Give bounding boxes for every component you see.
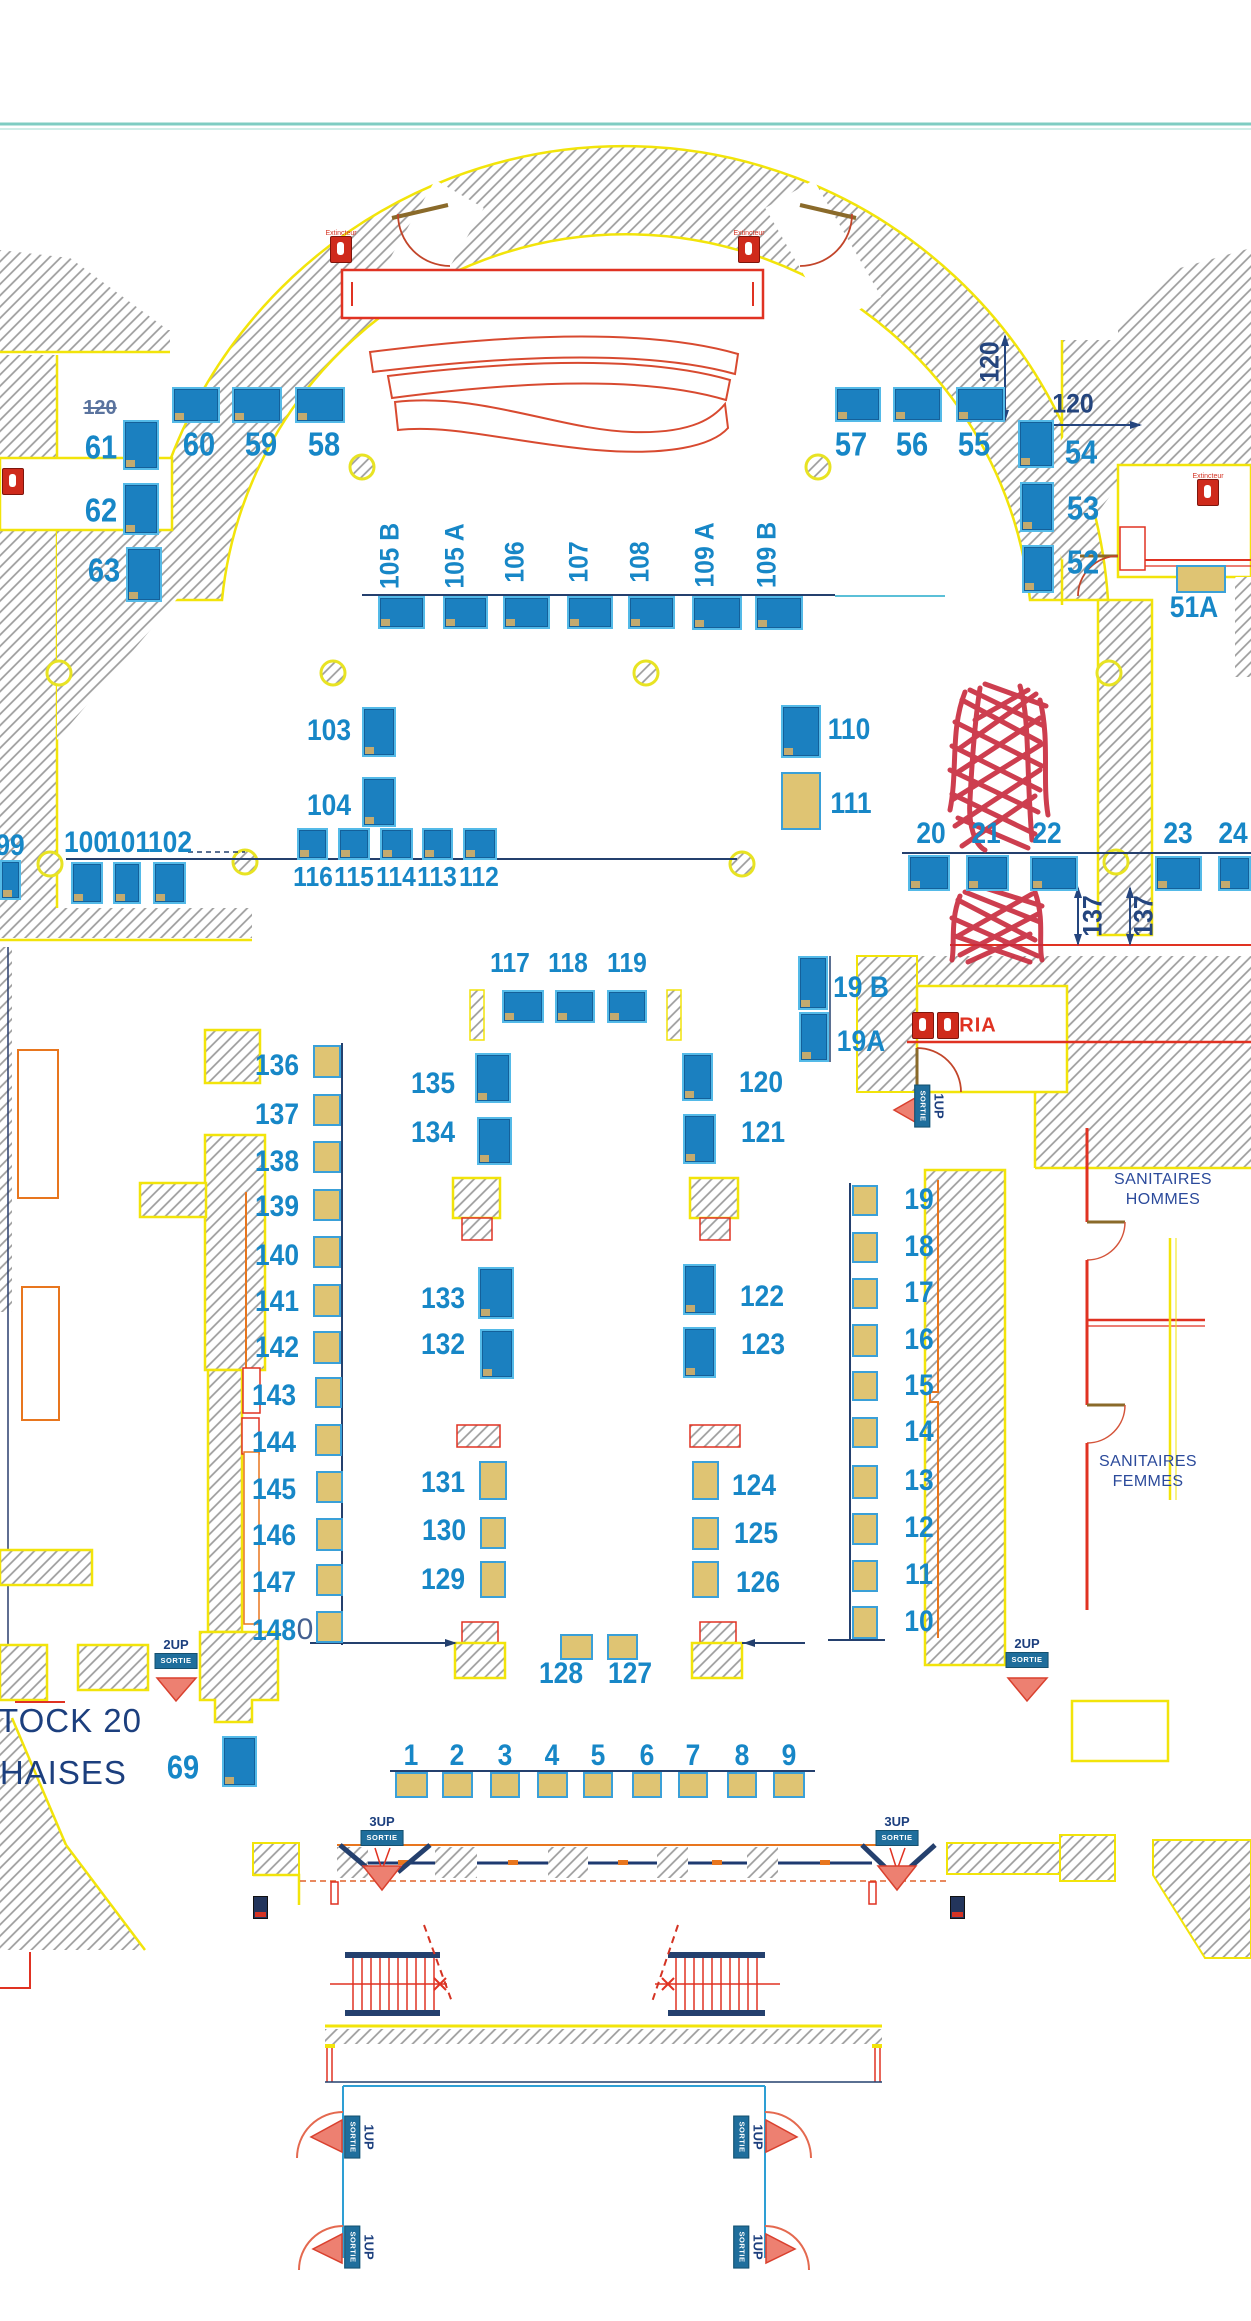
booth-box-62 xyxy=(123,483,159,535)
booth-label-9: 9 xyxy=(782,1741,797,1771)
booth-box-143 xyxy=(315,1377,342,1408)
booth-box-105A xyxy=(443,596,488,629)
booth-box-135 xyxy=(475,1053,511,1103)
booth-box-4 xyxy=(537,1772,568,1798)
booth-label-126: 126 xyxy=(736,1568,780,1598)
booth-box-124 xyxy=(692,1461,719,1500)
booth-label-118: 118 xyxy=(548,949,588,977)
booth-label-129: 129 xyxy=(421,1565,465,1595)
dimension-text-0: 120 xyxy=(977,341,1004,382)
booth-box-102 xyxy=(153,862,186,904)
booth-label-56: 56 xyxy=(896,428,928,461)
top-boundary-lines xyxy=(0,124,1251,129)
exit-level-label: 1UP xyxy=(362,2124,375,2149)
booth-label-125: 125 xyxy=(734,1519,778,1549)
booth-box-19B xyxy=(798,956,828,1010)
dimension-text-3: 137 xyxy=(1131,895,1158,936)
booth-label-145: 145 xyxy=(252,1475,296,1505)
booth-label-136: 136 xyxy=(255,1051,299,1081)
booth-label-128: 128 xyxy=(539,1659,583,1689)
booth-box-7 xyxy=(678,1772,708,1798)
booth-box-60 xyxy=(172,387,220,423)
fire-call-point-icon xyxy=(253,1896,268,1919)
booth-label-133: 133 xyxy=(421,1284,465,1314)
exit-level-label: 3UP xyxy=(369,1815,394,1828)
booth-label-19: 19 xyxy=(904,1185,933,1215)
booth-label-99: 99 xyxy=(0,831,25,861)
booth-box-125 xyxy=(692,1517,719,1550)
booth-box-8 xyxy=(727,1772,757,1798)
booth-label-127: 127 xyxy=(608,1659,652,1689)
extincteur-icon: Extincteur xyxy=(1197,479,1219,506)
booth-box-17 xyxy=(852,1278,878,1309)
booth-label-51A: 51A xyxy=(1170,593,1218,623)
booth-label-10: 10 xyxy=(904,1607,933,1637)
booth-label-52: 52 xyxy=(1067,546,1099,579)
exit-level-label: 1UP xyxy=(751,2124,764,2149)
booth-label-17: 17 xyxy=(904,1278,933,1308)
booth-label-63: 63 xyxy=(88,554,120,587)
booth-box-23 xyxy=(1155,856,1202,891)
booth-box-136 xyxy=(313,1045,341,1078)
booth-label-140: 140 xyxy=(255,1241,299,1271)
booth-label-134: 134 xyxy=(411,1118,455,1148)
sortie-sign: SORTIE xyxy=(915,1085,931,1128)
booth-box-109B xyxy=(755,596,803,630)
extincteur-icon xyxy=(2,468,24,495)
booth-box-145 xyxy=(316,1471,343,1503)
booth-box-22 xyxy=(1030,856,1078,891)
booth-box-56 xyxy=(893,387,942,422)
booth-label-13: 13 xyxy=(904,1466,933,1496)
booth-label-55: 55 xyxy=(958,428,990,461)
booth-box-112 xyxy=(463,828,497,860)
exit-level-label: 1UP xyxy=(751,2234,764,2259)
exit-badge-1: 2UPSORTIE xyxy=(1006,1637,1049,1668)
booth-box-6 xyxy=(632,1772,662,1798)
booth-box-133 xyxy=(478,1267,514,1319)
booth-label-6: 6 xyxy=(640,1741,655,1771)
ria-area-walls xyxy=(857,945,1251,1168)
booth-box-9 xyxy=(773,1772,805,1798)
booth-box-100 xyxy=(71,862,103,904)
booth-label-142: 142 xyxy=(255,1333,299,1363)
fire-call-point-icon xyxy=(950,1896,965,1919)
booth-box-11 xyxy=(852,1560,878,1592)
extincteur-box-icon xyxy=(330,236,352,263)
booth-box-19 xyxy=(852,1185,878,1216)
stairs xyxy=(330,1925,780,2016)
booth-label-58: 58 xyxy=(308,428,340,461)
dimension-text-2: 137 xyxy=(1080,895,1107,936)
extincteur-box-icon xyxy=(912,1012,934,1039)
sanitaires-femmes-label: SANITAIRES FEMMES xyxy=(1099,1452,1197,1492)
booth-box-5 xyxy=(583,1772,613,1798)
exit-badge-2: 3UPSORTIE xyxy=(361,1815,404,1846)
booth-box-119 xyxy=(607,990,647,1023)
booth-box-101 xyxy=(113,862,141,904)
exit-level-label: 1UP xyxy=(362,2234,375,2259)
booth-label-7: 7 xyxy=(686,1741,701,1771)
booth-box-123 xyxy=(683,1327,716,1378)
booth-box-115 xyxy=(338,828,370,860)
extincteur-box-icon xyxy=(2,468,24,495)
booth-label-100: 100 xyxy=(64,828,108,858)
booth-box-148 xyxy=(316,1611,343,1643)
dimension-text-1: 120 xyxy=(1052,391,1093,418)
ria-label: RIA xyxy=(959,1014,996,1039)
booth-label-111: 111 xyxy=(830,789,871,819)
booth-box-20 xyxy=(908,855,950,891)
booth-box-1 xyxy=(395,1772,428,1798)
booth-box-63 xyxy=(126,547,162,602)
booth-label-19B: 19 B xyxy=(833,973,889,1003)
booth-label-146: 146 xyxy=(252,1521,296,1551)
booth-box-107 xyxy=(567,596,613,629)
booth-box-13 xyxy=(852,1465,878,1499)
stock-label-line1: STOCK 20 xyxy=(0,1700,142,1741)
booth-label-11: 11 xyxy=(905,1560,933,1590)
extincteur-icon: Extincteur xyxy=(330,236,352,263)
booth-label-132: 132 xyxy=(421,1330,465,1360)
booth-box-120 xyxy=(682,1053,713,1101)
sortie-sign: SORTIE xyxy=(361,1830,404,1846)
booth-box-14 xyxy=(852,1417,878,1448)
booth-box-59 xyxy=(232,387,282,423)
extincteur-icon xyxy=(937,1012,959,1039)
extincteur-icon xyxy=(912,1012,934,1039)
booth-label-3: 3 xyxy=(498,1741,513,1771)
booth-label-147: 147 xyxy=(252,1568,296,1598)
booth-label-123: 123 xyxy=(741,1330,785,1360)
booth-label-120: 120 xyxy=(739,1068,783,1098)
extincteur-label: Extincteur xyxy=(325,230,356,237)
booth-label-24: 24 xyxy=(1218,819,1247,849)
exit-badge-8: 1UPSORTIE xyxy=(734,2226,765,2269)
booth-box-58 xyxy=(295,387,345,423)
booth-label-143: 143 xyxy=(252,1381,296,1411)
exit-badge-4: 1UPSORTIE xyxy=(915,1085,946,1128)
booth-label-108: 108 xyxy=(627,541,654,582)
booth-label-139: 139 xyxy=(255,1192,299,1222)
booth-label-4: 4 xyxy=(545,1741,560,1771)
sanitaires-hommes-line1: SANITAIRES xyxy=(1114,1171,1212,1188)
left-walls xyxy=(0,330,278,1722)
sortie-sign: SORTIE xyxy=(876,1830,919,1846)
booth-box-18 xyxy=(852,1232,878,1263)
exit-level-label: 1UP xyxy=(932,1093,945,1118)
booth-label-109B: 109 B xyxy=(754,522,781,588)
booth-label-114: 114 xyxy=(376,863,416,891)
floor-plan: STOCK 20 CHAISES SANITAIRES HOMMES SANIT… xyxy=(0,0,1251,2321)
booth-box-114 xyxy=(380,828,413,860)
booth-label-122: 122 xyxy=(740,1282,784,1312)
sortie-sign: SORTIE xyxy=(734,2226,750,2269)
extincteur-label: Extincteur xyxy=(1192,473,1223,480)
booth-label-137b: 137 xyxy=(255,1100,299,1130)
exit-level-label: 2UP xyxy=(1014,1637,1039,1650)
booth-label-20: 20 xyxy=(916,819,945,849)
exit-badge-5: 1UPSORTIE xyxy=(345,2116,376,2159)
booth-label-14: 14 xyxy=(904,1417,933,1447)
booth-box-52 xyxy=(1022,545,1054,593)
booth-label-15: 15 xyxy=(904,1371,933,1401)
booth-label-121: 121 xyxy=(741,1118,785,1148)
booth-box-108 xyxy=(628,596,675,629)
booth-label-105B: 105 B xyxy=(377,523,404,589)
booth-box-142 xyxy=(313,1331,341,1364)
bottom-platform xyxy=(325,2026,882,2258)
booth-label-21: 21 xyxy=(971,819,1000,849)
sortie-sign: SORTIE xyxy=(1006,1652,1049,1668)
booth-box-113 xyxy=(422,828,453,860)
booth-label-60: 60 xyxy=(183,428,215,461)
booth-label-106: 106 xyxy=(502,541,529,582)
booth-box-117 xyxy=(502,990,544,1023)
booth-box-54 xyxy=(1018,420,1054,468)
booth-box-15 xyxy=(852,1371,878,1401)
booth-label-119: 119 xyxy=(607,949,647,977)
booth-label-16: 16 xyxy=(904,1325,933,1355)
booth-box-57 xyxy=(835,387,881,422)
exit-level-label: 2UP xyxy=(163,1638,188,1651)
booth-box-141 xyxy=(313,1284,341,1317)
booth-label-135: 135 xyxy=(411,1069,455,1099)
booth-label-141: 141 xyxy=(255,1287,299,1317)
booth-box-137b xyxy=(313,1094,341,1126)
booth-box-104 xyxy=(362,777,396,827)
booth-box-147 xyxy=(316,1564,343,1596)
sortie-sign: SORTIE xyxy=(345,2226,361,2269)
booth-label-23: 23 xyxy=(1163,819,1192,849)
exit-badge-3: 3UPSORTIE xyxy=(876,1815,919,1846)
annotation-0: 120 xyxy=(83,398,116,418)
extincteur-label: Extincteur xyxy=(733,230,764,237)
annotation-1: 0 xyxy=(297,1615,314,1645)
booth-label-2: 2 xyxy=(450,1741,465,1771)
booth-box-134 xyxy=(477,1117,512,1165)
booth-box-140 xyxy=(313,1236,341,1268)
booth-label-110: 110 xyxy=(828,715,871,745)
extincteur-box-icon xyxy=(738,236,760,263)
booth-box-132 xyxy=(480,1329,514,1379)
booth-box-99 xyxy=(0,860,21,900)
booth-label-53: 53 xyxy=(1067,492,1099,525)
booth-label-1: 1 xyxy=(404,1741,419,1771)
booth-box-106 xyxy=(503,596,550,629)
booth-box-126 xyxy=(692,1561,719,1598)
booth-box-118 xyxy=(555,990,595,1023)
booth-label-130: 130 xyxy=(422,1516,466,1546)
booth-box-10 xyxy=(852,1606,878,1639)
booth-label-5: 5 xyxy=(591,1741,606,1771)
booth-box-121 xyxy=(683,1114,716,1164)
booth-label-107: 107 xyxy=(566,541,593,582)
booth-box-139 xyxy=(313,1189,341,1221)
booth-box-129 xyxy=(480,1561,506,1598)
sortie-sign: SORTIE xyxy=(155,1653,198,1669)
booth-box-69 xyxy=(222,1736,257,1787)
booth-label-112: 112 xyxy=(459,863,499,891)
booth-box-24 xyxy=(1218,856,1251,891)
booth-box-3 xyxy=(490,1772,520,1798)
booth-label-12: 12 xyxy=(904,1513,933,1543)
booth-box-109A xyxy=(692,596,742,630)
walls-layer xyxy=(0,0,1251,2321)
booth-box-105B xyxy=(378,596,425,629)
sanitaires-hommes-label: SANITAIRES HOMMES xyxy=(1114,1170,1212,1210)
sanitaires-hommes-line2: HOMMES xyxy=(1126,1191,1200,1208)
booth-label-115: 115 xyxy=(334,863,374,891)
booth-box-131 xyxy=(479,1461,507,1500)
booth-box-130 xyxy=(480,1517,506,1549)
booth-label-102: 102 xyxy=(148,828,192,858)
sortie-sign: SORTIE xyxy=(734,2116,750,2159)
booth-label-148: 148 xyxy=(252,1616,296,1646)
booth-box-61 xyxy=(123,420,159,470)
stage xyxy=(342,270,763,452)
booth-label-62: 62 xyxy=(85,494,117,527)
booth-label-57: 57 xyxy=(835,428,867,461)
extincteur-box-icon xyxy=(937,1012,959,1039)
booth-label-105A: 105 A xyxy=(442,523,469,588)
booth-box-110 xyxy=(781,705,821,758)
booth-box-111 xyxy=(781,772,821,830)
booth-label-19A: 19A xyxy=(837,1027,885,1057)
exit-level-label: 3UP xyxy=(884,1815,909,1828)
stock-label-line2: CHAISES xyxy=(0,1752,127,1793)
bottom-right-walls xyxy=(1060,1835,1251,1958)
booth-box-12 xyxy=(852,1513,878,1545)
exit-badge-6: 1UPSORTIE xyxy=(734,2116,765,2159)
sanitaires-femmes-line2: FEMMES xyxy=(1113,1473,1184,1490)
booth-box-55 xyxy=(956,387,1005,422)
extincteur-icon: Extincteur xyxy=(738,236,760,263)
sanitaires-femmes-line1: SANITAIRES xyxy=(1099,1453,1197,1470)
booth-label-131: 131 xyxy=(421,1468,465,1498)
booth-box-19A xyxy=(799,1012,829,1062)
booth-label-116: 116 xyxy=(293,863,333,891)
booth-label-69: 69 xyxy=(167,1751,199,1784)
booth-label-109A: 109 A xyxy=(692,522,719,587)
exit-badge-7: 1UPSORTIE xyxy=(345,2226,376,2269)
booth-box-138 xyxy=(313,1141,341,1173)
exit-badge-0: 2UPSORTIE xyxy=(155,1638,198,1669)
booth-box-116 xyxy=(297,828,328,860)
booth-label-124: 124 xyxy=(732,1471,776,1501)
booth-box-2 xyxy=(442,1772,473,1798)
booth-label-8: 8 xyxy=(735,1741,750,1771)
booth-box-16 xyxy=(852,1324,878,1357)
booth-box-51A xyxy=(1176,565,1226,593)
extincteur-box-icon xyxy=(1197,479,1219,506)
booth-label-103: 103 xyxy=(307,716,351,746)
booth-label-144: 144 xyxy=(252,1428,296,1458)
booth-label-101: 101 xyxy=(106,828,150,858)
booth-box-103 xyxy=(362,707,396,757)
sortie-sign: SORTIE xyxy=(345,2116,361,2159)
sanitaires-walls xyxy=(925,1128,1205,1761)
booth-box-122 xyxy=(683,1264,716,1315)
booth-box-21 xyxy=(966,855,1009,891)
booth-label-113: 113 xyxy=(417,863,457,891)
booth-label-59: 59 xyxy=(245,428,277,461)
booth-label-54: 54 xyxy=(1065,436,1097,469)
booth-label-61: 61 xyxy=(85,431,117,464)
booth-label-117: 117 xyxy=(490,949,530,977)
booth-box-144 xyxy=(315,1424,342,1456)
booth-label-138: 138 xyxy=(255,1147,299,1177)
booth-label-22: 22 xyxy=(1032,819,1061,849)
booth-box-146 xyxy=(316,1518,343,1551)
booth-label-18: 18 xyxy=(904,1232,933,1262)
booth-label-104: 104 xyxy=(307,791,351,821)
booth-box-53 xyxy=(1020,482,1054,532)
